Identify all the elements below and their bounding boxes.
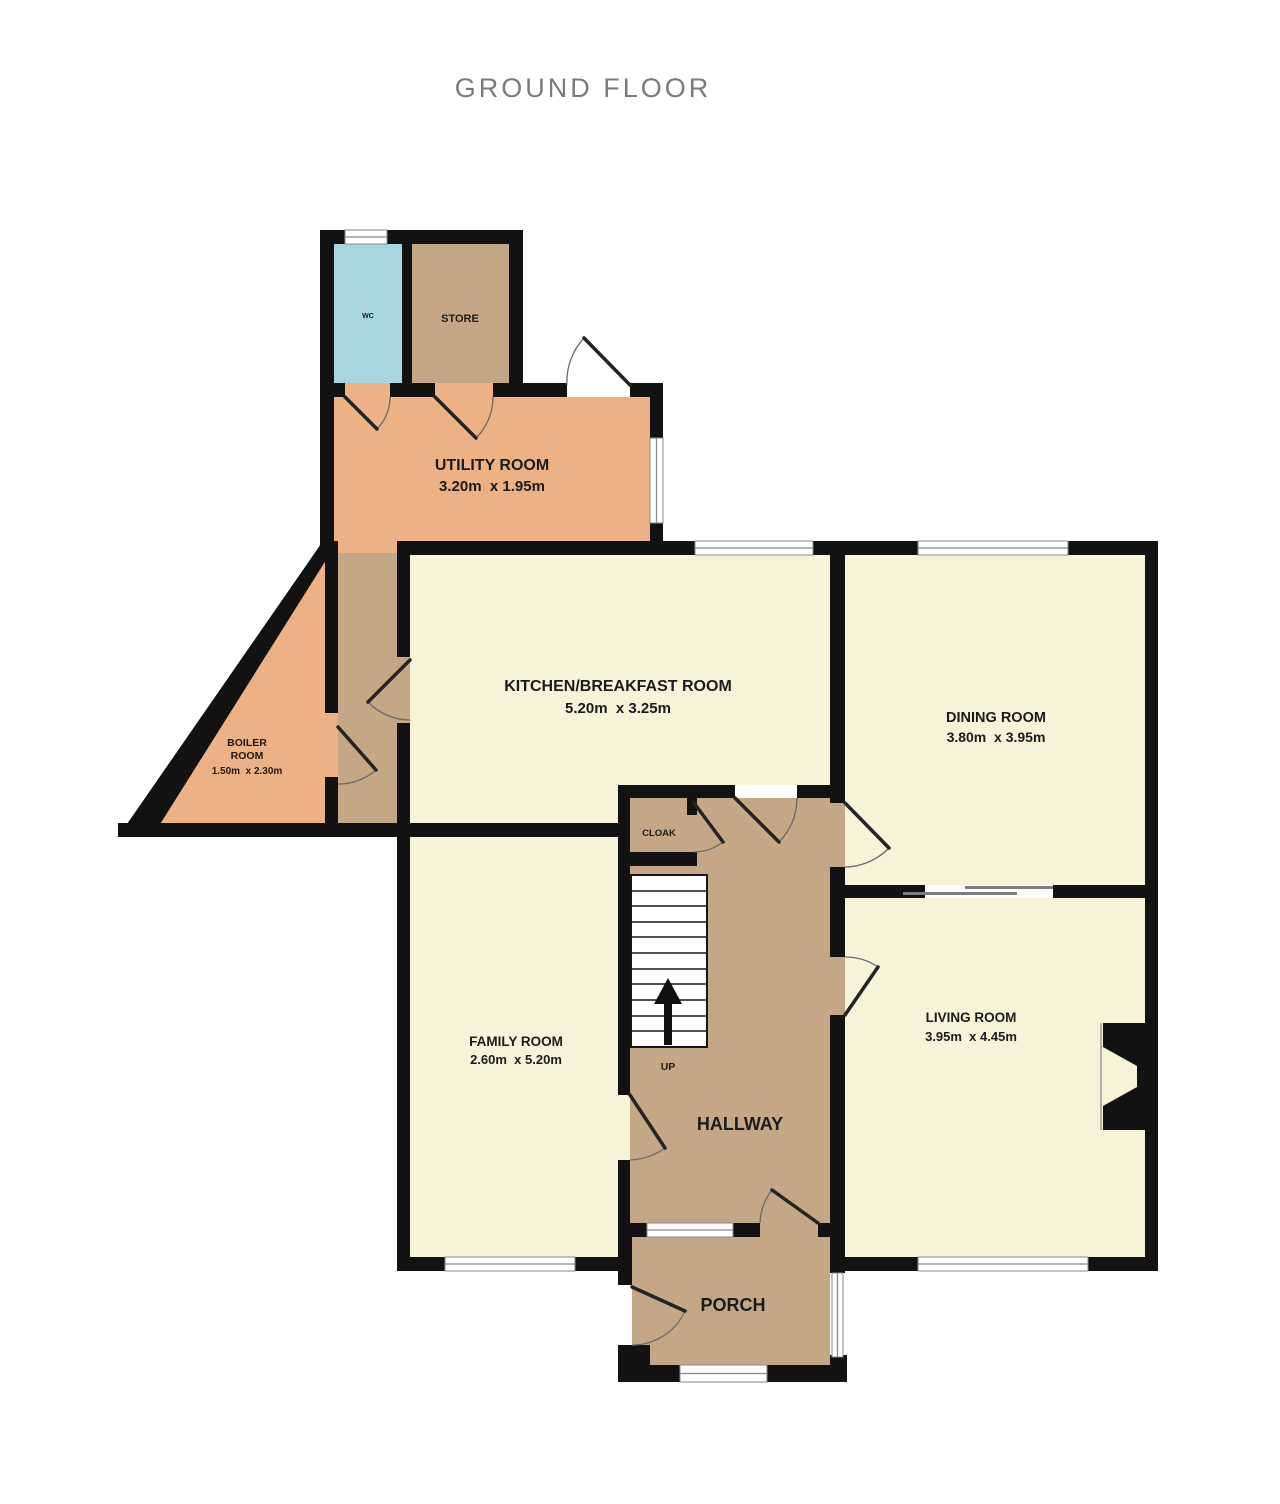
utility-room-label: UTILITY ROOM — [435, 457, 549, 474]
living-room-floor — [845, 898, 1145, 1257]
dining-room-label: DINING ROOM — [946, 710, 1046, 726]
dining-room-dims: 3.80m x 3.95m — [947, 729, 1046, 745]
boiler-room-label-1: BOILER — [227, 737, 267, 749]
wall-segment — [334, 383, 345, 397]
wall-segment — [818, 1223, 845, 1237]
wall-segment — [1145, 541, 1158, 1271]
wall-segment — [325, 555, 338, 713]
porch-label: PORCH — [700, 1295, 765, 1315]
window-utility-right — [650, 438, 663, 523]
wall-segment — [845, 885, 925, 898]
wall-segment — [397, 555, 410, 657]
corridor-floor — [338, 553, 397, 823]
wc-label: WC — [362, 313, 374, 320]
ground-floor-plan: GROUND FLOOR — [0, 0, 1280, 1504]
wall-segment — [118, 823, 397, 837]
threshold — [325, 713, 338, 777]
window-wc-top — [345, 230, 387, 244]
utility-room-dims: 3.20m x 1.95m — [439, 478, 545, 495]
store-label: STORE — [441, 313, 479, 325]
wall-segment — [1053, 885, 1145, 898]
window-dining-top — [918, 541, 1068, 555]
window-porch-bottom — [680, 1365, 767, 1382]
wall-segment — [733, 1223, 760, 1237]
window-hallway-porch — [647, 1223, 733, 1237]
family-room-label: FAMILY ROOM — [469, 1034, 563, 1049]
threshold — [760, 1223, 818, 1237]
cloak-label: CLOAK — [642, 828, 676, 839]
wall-segment — [493, 383, 509, 397]
threshold — [830, 803, 845, 867]
opening-line — [903, 892, 1017, 895]
floorplan-page: GROUND FLOOR — [0, 0, 1280, 1504]
living-room-label: LIVING ROOM — [926, 1010, 1017, 1025]
threshold — [830, 957, 845, 1015]
window-kitchen-top — [695, 541, 813, 555]
door-arc — [567, 338, 584, 385]
dining-living-opening — [903, 886, 1053, 895]
hallway-label: HALLWAY — [697, 1114, 783, 1134]
wall-segment — [397, 823, 630, 837]
wall-segment — [390, 383, 435, 397]
family-room-dims: 2.60m x 5.20m — [470, 1052, 562, 1067]
wall-segment — [509, 383, 567, 397]
window-porch-right — [832, 1273, 843, 1357]
wall-segment — [397, 837, 410, 1271]
wall-segment — [830, 785, 845, 803]
up-arrow-shaft — [664, 1000, 672, 1045]
staircase — [631, 875, 707, 1047]
wall-segment — [830, 1257, 845, 1273]
wall-segment — [320, 230, 334, 555]
threshold — [618, 1095, 630, 1160]
wall-segment — [618, 798, 630, 1095]
wall-segment — [325, 777, 338, 823]
living-room-dims: 3.95m x 4.45m — [925, 1029, 1017, 1044]
wall-segment — [630, 852, 697, 866]
kitchen-label: KITCHEN/BREAKFAST ROOM — [504, 678, 732, 695]
door-utility-exterior — [567, 338, 630, 385]
threshold — [435, 383, 493, 397]
wall-segment — [509, 244, 523, 383]
wall-segment — [402, 244, 412, 383]
stairs-up-label: UP — [661, 1061, 676, 1073]
page-title: GROUND FLOOR — [455, 73, 712, 103]
window-living-bottom — [918, 1257, 1088, 1271]
wall-segment — [830, 867, 845, 957]
door-leaf — [584, 338, 630, 385]
wall-segment — [830, 1015, 845, 1257]
threshold — [345, 383, 390, 397]
boiler-room-dims: 1.50m x 2.30m — [212, 766, 283, 777]
wall-segment — [830, 1355, 847, 1382]
wall-segment — [618, 1223, 647, 1237]
wall-segment — [397, 723, 410, 837]
wall-segment — [630, 383, 663, 397]
boiler-room-label-2: ROOM — [231, 750, 264, 762]
room-fills — [140, 244, 1145, 1365]
wall-segment — [618, 785, 735, 798]
opening-line — [965, 886, 1053, 889]
wall-segment — [830, 555, 845, 785]
wall-segment — [618, 1237, 632, 1285]
window-family-bottom — [445, 1257, 575, 1271]
kitchen-dims: 5.20m x 3.25m — [565, 700, 671, 717]
